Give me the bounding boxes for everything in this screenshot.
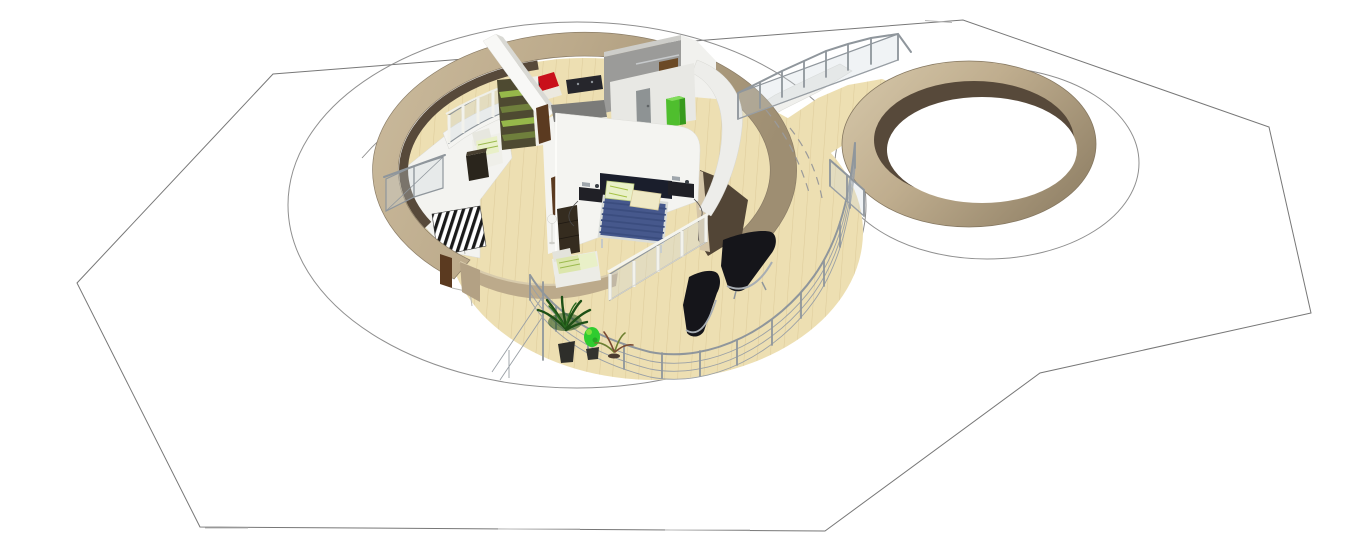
door-handle (647, 105, 650, 108)
gray-interior-door (636, 88, 651, 127)
shrub-pot (586, 347, 599, 360)
green-cabinet (666, 96, 686, 128)
media-box (466, 148, 489, 181)
enclosure-interior (887, 97, 1077, 203)
bed-pillow-cream (630, 190, 661, 210)
scene-canvas (0, 0, 1360, 544)
front-wall-brown-cap (440, 254, 452, 288)
3d-viewport[interactable] (0, 0, 1360, 544)
bed-pillow-green (605, 181, 634, 201)
palm-pot (558, 341, 575, 363)
round-enclosure (842, 61, 1096, 227)
